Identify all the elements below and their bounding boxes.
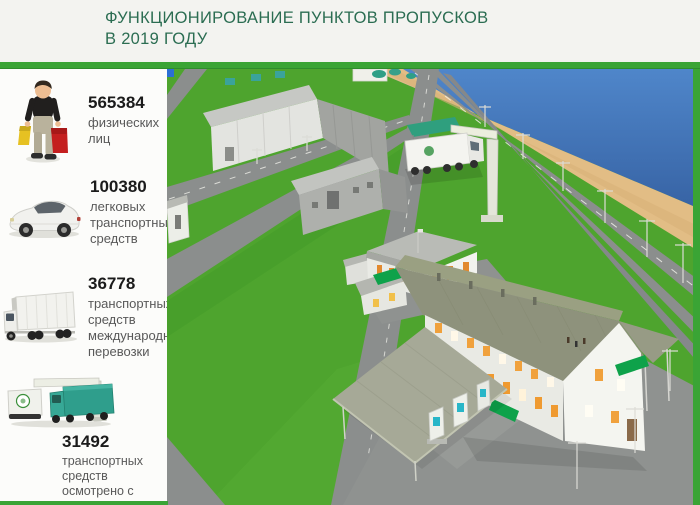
page-title-line2: В 2019 ГОДУ [105,29,488,50]
stat-item-midk: 31492 транспортных средств осмотрено с и… [62,432,172,505]
checkpoint-3d-render [167,69,700,505]
stat-value: 100380 [90,177,174,197]
header: ФУНКЦИОНИРОВАНИЕ ПУНКТОВ ПРОПУСКОВ В 201… [0,0,700,62]
stat-item-cars: 100380 легковых транспортных средств [90,177,174,247]
stat-value: 565384 [88,93,172,113]
person-with-bags-icon [16,78,68,163]
passenger-car-icon [4,186,84,242]
stat-item-intl-trucks: 36778 транспортных средств международной… [88,274,176,360]
stats-panel: 565384 физических лиц 100380 легковых тр… [0,69,167,505]
page-title: ФУНКЦИОНИРОВАНИЕ ПУНКТОВ ПРОПУСКОВ В 201… [105,8,488,50]
stat-label: физических лиц [88,115,172,147]
page-title-line1: ФУНКЦИОНИРОВАНИЕ ПУНКТОВ ПРОПУСКОВ [105,8,488,29]
accent-bar-top [0,62,700,69]
stat-item-persons: 565384 физических лиц [88,93,172,147]
stat-label: транспортных средств международной перев… [88,296,176,360]
guard-box [167,195,189,243]
cargo-truck-icon [2,287,80,345]
stat-label: транспортных средств осмотрено с использ… [62,454,172,505]
blue-sign [167,69,174,77]
stat-value: 31492 [62,432,172,452]
accent-bar-bottom [0,501,168,505]
slide: ФУНКЦИОНИРОВАНИЕ ПУНКТОВ ПРОПУСКОВ В 201… [0,0,700,505]
accent-bar-right [693,69,700,505]
midk-scanner-icon [6,371,116,429]
checkpoint-3d-scene [167,69,700,505]
stat-label: легковых транспортных средств [90,199,174,247]
stat-value: 36778 [88,274,176,294]
